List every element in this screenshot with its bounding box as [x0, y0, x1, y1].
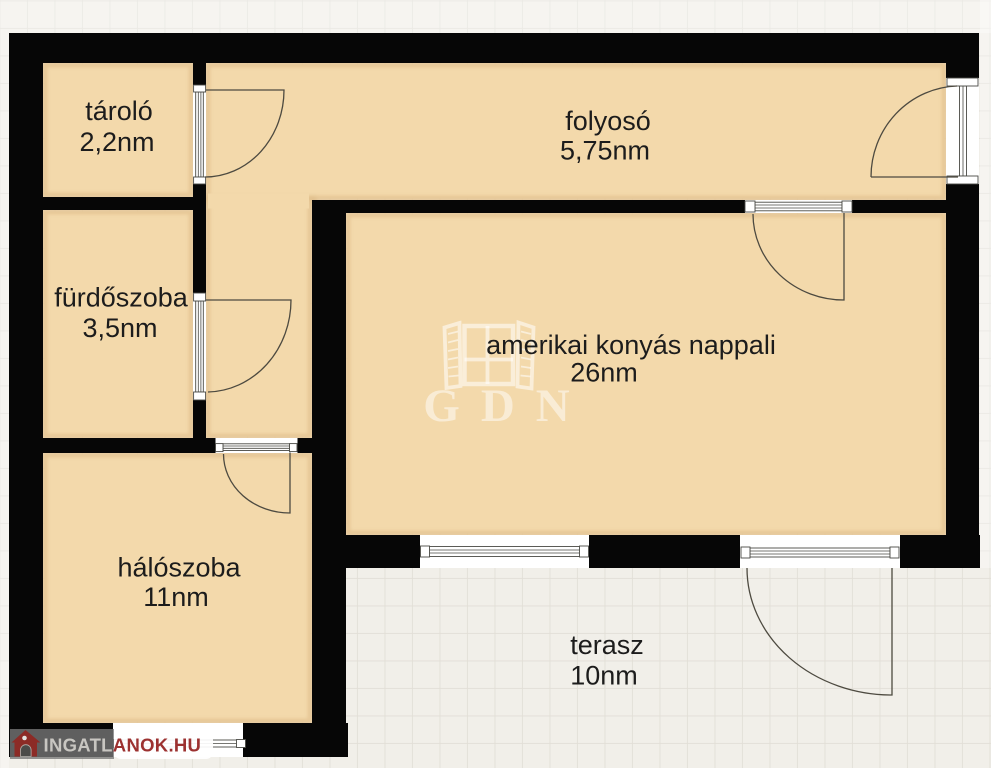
svg-text:folyosó: folyosó	[565, 106, 651, 136]
svg-text:tároló: tároló	[85, 96, 153, 126]
svg-text:terasz: terasz	[570, 630, 644, 660]
svg-text:2,2nm: 2,2nm	[79, 127, 154, 157]
svg-text:26nm: 26nm	[570, 358, 638, 388]
svg-text:11nm: 11nm	[143, 582, 209, 612]
svg-text:hálószoba: hálószoba	[117, 552, 241, 582]
svg-text:fürdőszoba: fürdőszoba	[54, 283, 189, 313]
svg-text:5,75nm: 5,75nm	[560, 136, 650, 166]
svg-text:INGATLANOK.HU: INGATLANOK.HU	[44, 735, 202, 756]
svg-text:3,5nm: 3,5nm	[82, 313, 157, 343]
svg-text:10nm: 10nm	[570, 661, 638, 691]
svg-text:amerikai konyás nappali: amerikai konyás nappali	[486, 330, 776, 360]
svg-text:GDN: GDN	[423, 380, 590, 432]
